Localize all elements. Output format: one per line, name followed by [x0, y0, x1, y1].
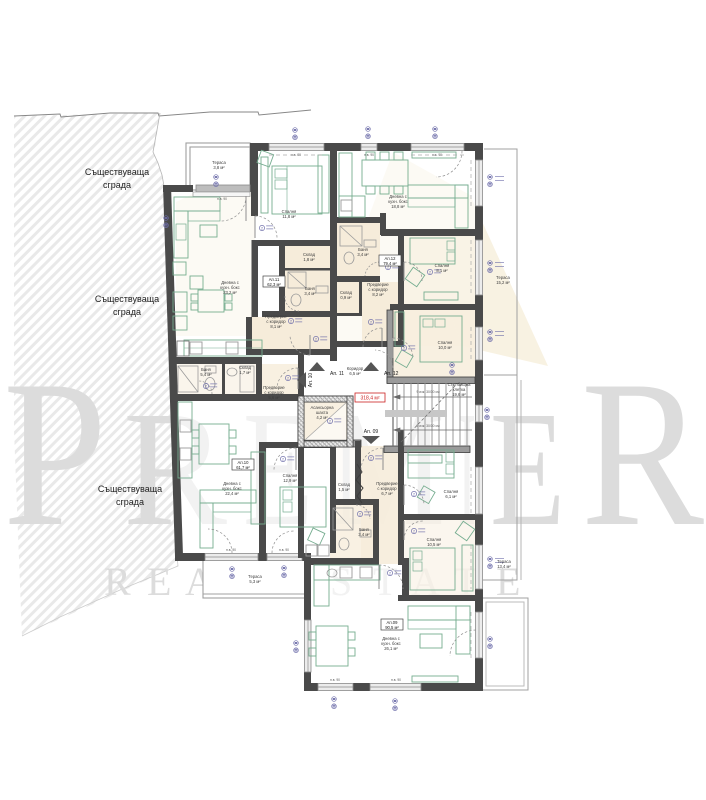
svg-text:Ап. 09: Ап. 09: [364, 429, 379, 435]
svg-text:н.в. 90: н.в. 90: [226, 548, 236, 552]
svg-text:6,7 м²: 6,7 м²: [381, 491, 393, 496]
svg-text:8,1 м²: 8,1 м²: [270, 324, 282, 329]
svg-text:19,6 м²: 19,6 м²: [452, 392, 466, 397]
svg-text:Ап. 11: Ап. 11: [330, 371, 344, 377]
svg-text:15,2 м²: 15,2 м²: [496, 280, 510, 285]
svg-text:Съществуваща: Съществуваща: [85, 167, 149, 177]
svg-text:Ап. 12: Ап. 12: [384, 371, 399, 377]
svg-text:E: E: [147, 559, 171, 604]
svg-text:5,3 м²: 5,3 м²: [249, 579, 261, 584]
svg-text:н.в. 90: н.в. 90: [330, 678, 340, 682]
svg-text:12,9 м²: 12,9 м²: [283, 478, 297, 483]
svg-text:6,5 м²: 6,5 м²: [349, 371, 361, 376]
svg-text:8,2 м²: 8,2 м²: [372, 292, 384, 297]
svg-text:1,7 м²: 1,7 м²: [239, 370, 251, 375]
svg-text:сграда: сграда: [103, 180, 131, 190]
svg-text:н.в. 90: н.в. 90: [279, 548, 289, 552]
svg-text:Ап. 10: Ап. 10: [308, 373, 314, 388]
svg-text:318,4 м²: 318,4 м²: [360, 396, 379, 402]
svg-text:6,1 м²: 6,1 м²: [445, 494, 457, 499]
svg-text:н.в. 90: н.в. 90: [391, 678, 401, 682]
svg-text:P: P: [3, 338, 107, 570]
svg-text:н.в. 90: н.в. 90: [217, 197, 227, 201]
svg-text:3,8 м²: 3,8 м²: [213, 165, 225, 170]
svg-text:R: R: [104, 559, 131, 604]
svg-text:Съществуваща: Съществуваща: [98, 484, 162, 494]
svg-text:62,3 м²: 62,3 м²: [267, 282, 281, 287]
svg-text:н.в. 90: н.в. 90: [364, 153, 374, 157]
svg-text:10,5 м²: 10,5 м²: [427, 542, 441, 547]
svg-text:4,2 м²: 4,2 м²: [316, 415, 328, 420]
svg-text:61,7 м²: 61,7 м²: [236, 465, 250, 470]
svg-text:1,5 м²: 1,5 м²: [338, 487, 350, 492]
svg-text:26,1 м²: 26,1 м²: [384, 646, 398, 651]
svg-text:1,8 м²: 1,8 м²: [303, 257, 315, 262]
svg-text:3,4 м²: 3,4 м²: [357, 252, 369, 257]
svg-text:8,1 м²: 8,1 м²: [436, 268, 448, 273]
svg-text:23,2 м²: 23,2 м²: [223, 290, 237, 295]
svg-text:сграда: сграда: [116, 497, 144, 507]
svg-text:79,4 м²: 79,4 м²: [383, 261, 397, 266]
svg-text:R: R: [581, 338, 704, 570]
svg-text:9 изк. 30/30 см: 9 изк. 30/30 см: [416, 424, 440, 428]
svg-text:3,4 м²: 3,4 м²: [304, 291, 316, 296]
svg-text:0,9 м²: 0,9 м²: [340, 295, 352, 300]
svg-text:22,4 м²: 22,4 м²: [225, 491, 239, 496]
svg-text:9 изк. 30/30 см: 9 изк. 30/30 см: [416, 390, 440, 394]
svg-text:E: E: [490, 377, 565, 560]
svg-text:90,5 м²: 90,5 м²: [385, 625, 399, 630]
svg-text:18,8 м²: 18,8 м²: [391, 204, 405, 209]
svg-text:5,6 м²: 5,6 м²: [268, 395, 280, 400]
svg-text:сграда: сграда: [113, 307, 141, 317]
svg-text:3,4 м²: 3,4 м²: [358, 532, 370, 537]
svg-text:10,0 м²: 10,0 м²: [438, 345, 452, 350]
svg-text:11,8 м²: 11,8 м²: [282, 214, 296, 219]
svg-text:13,4 м²: 13,4 м²: [497, 564, 511, 569]
svg-text:5,4 м²: 5,4 м²: [200, 372, 212, 377]
svg-text:Съществуваща: Съществуваща: [95, 294, 159, 304]
